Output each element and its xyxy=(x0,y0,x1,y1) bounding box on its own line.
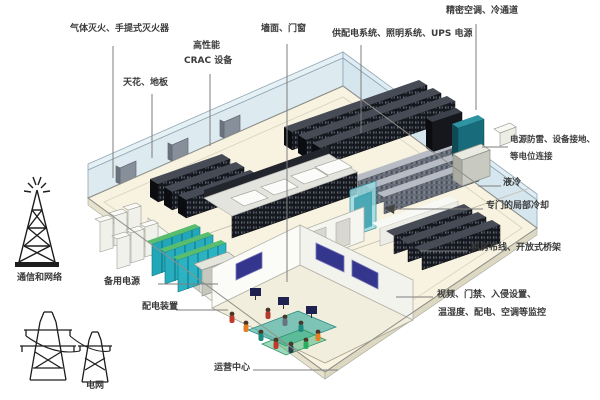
label-monitoring-line1: 视频、门禁、入侵设置、 xyxy=(437,291,536,301)
label-crac-line1: 高性能 xyxy=(193,42,220,52)
label-power-grid: 电网 xyxy=(86,382,104,392)
label-wall-doors: 墙面、门窗 xyxy=(261,25,306,35)
label-surge-grounding-line2: 等电位连接 xyxy=(510,153,553,162)
isometric-scene xyxy=(0,0,600,400)
label-monitoring-line2: 温湿度、配电、空调等监控 xyxy=(438,309,546,319)
label-crac-line2: CRAC 设备 xyxy=(184,57,232,67)
label-surge-grounding-line1: 电源防雷、设备接地、 xyxy=(510,136,595,145)
radio-tower-icon xyxy=(15,177,59,267)
datacenter-diagram: 气体灭火、手提式灭火器 高性能 CRAC 设备 天花、地板 墙面、门窗 供配电系… xyxy=(0,0,600,400)
label-cabling-tray: 机房布线、开放式桥架 xyxy=(471,244,561,254)
label-gas-fire-suppression: 气体灭火、手提式灭火器 xyxy=(70,25,169,35)
label-backup-power: 备用电源 xyxy=(104,278,140,288)
label-comm-network: 通信和网络 xyxy=(17,274,62,284)
label-power-supply-system: 供配电系统、照明系统、UPS 电源 xyxy=(332,30,473,40)
label-power-distribution: 配电装置 xyxy=(142,303,178,313)
label-liquid-cooling: 液冷 xyxy=(503,179,521,189)
label-operations-center: 运营中心 xyxy=(214,364,250,374)
power-pylon-icon xyxy=(20,312,112,382)
label-local-cooling: 专门的局部冷却 xyxy=(486,202,549,212)
label-precision-ac: 精密空调、冷通道 xyxy=(446,7,518,17)
label-ceiling-floor: 天花、地板 xyxy=(123,79,168,89)
